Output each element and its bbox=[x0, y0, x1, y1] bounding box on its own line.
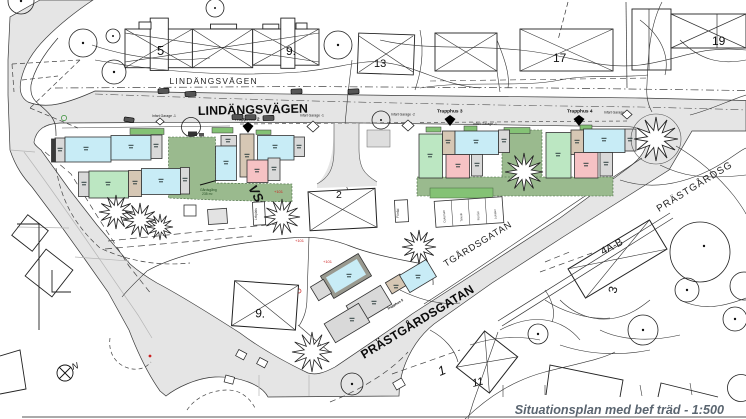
svg-text:Trapphus 4: Trapphus 4 bbox=[567, 109, 593, 115]
svg-text:19: 19 bbox=[712, 34, 726, 48]
svg-text:235 m²: 235 m² bbox=[202, 192, 213, 196]
svg-text:2: 2 bbox=[336, 189, 342, 201]
svg-text:9.: 9. bbox=[286, 44, 296, 58]
svg-text:Teknik: Teknik bbox=[459, 212, 464, 221]
svg-text:+101: +101 bbox=[274, 189, 284, 194]
svg-text:Förråd: Förråd bbox=[396, 208, 400, 218]
svg-text:13: 13 bbox=[374, 58, 386, 70]
svg-text:LINDÄNGSVÄGEN: LINDÄNGSVÄGEN bbox=[170, 76, 258, 86]
svg-text:Infart Garage -1: Infart Garage -1 bbox=[300, 114, 324, 118]
svg-text:+101: +101 bbox=[295, 238, 305, 243]
svg-text:Trapphus 3: Trapphus 3 bbox=[437, 109, 463, 115]
svg-text:+101: +101 bbox=[323, 259, 333, 264]
svg-text:Lokaler: Lokaler bbox=[493, 209, 498, 219]
svg-text:Situationsplan med bef träd -: Situationsplan med bef träd - 1:500 bbox=[515, 403, 724, 417]
svg-text:17: 17 bbox=[553, 51, 567, 65]
svg-text:9.: 9. bbox=[255, 306, 266, 321]
svg-text:Infart Garage -2: Infart Garage -2 bbox=[391, 113, 415, 117]
svg-text:Infart Garage -1: Infart Garage -1 bbox=[152, 114, 176, 118]
svg-text:Lekplats: Lekplats bbox=[254, 208, 258, 220]
svg-text:Infart Garage -1: Infart Garage -1 bbox=[473, 122, 497, 126]
svg-text:Förråd: Förråd bbox=[476, 211, 481, 220]
svg-text:5: 5 bbox=[157, 43, 164, 58]
